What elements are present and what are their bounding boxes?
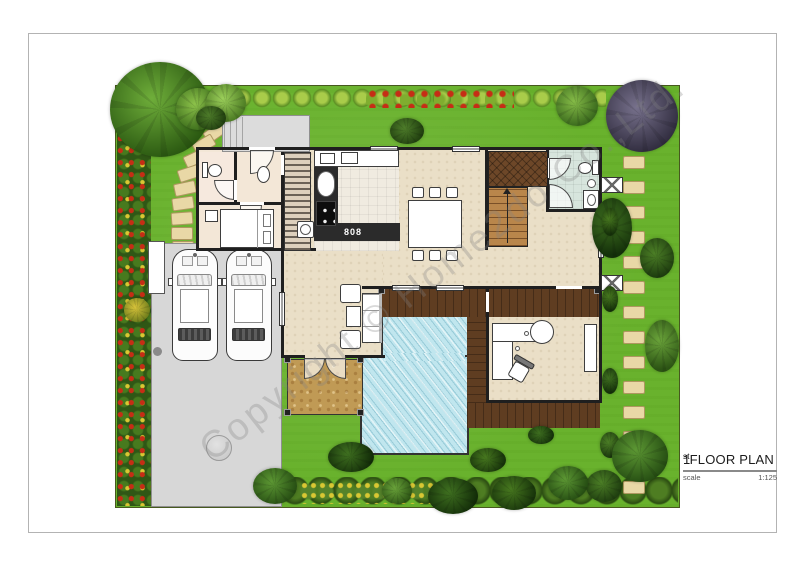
stepping-stone-icon [623, 181, 645, 194]
stepping-stone-icon [623, 406, 645, 419]
car-mirror [222, 278, 227, 286]
armchair-icon [340, 284, 361, 303]
pool-deck-right [467, 317, 488, 403]
car-mirror [271, 278, 276, 286]
tree-icon [556, 86, 598, 126]
car-headlight [197, 256, 208, 266]
scale-value: 1:125 [758, 473, 777, 482]
counter-hob [341, 152, 358, 164]
scale-row: scale 1:125 [683, 473, 777, 482]
palm-icon [470, 448, 506, 472]
washing-machine-icon [297, 221, 314, 238]
bed-pillow [263, 214, 271, 227]
plan-title-text: FLOOR PLAN [690, 452, 774, 467]
car-headlight [251, 256, 262, 266]
bed-blanket-line [257, 210, 258, 248]
nightstand [205, 210, 218, 222]
stepping-stone-icon [171, 227, 193, 240]
shrub-icon [602, 286, 618, 312]
palm-icon [328, 442, 374, 472]
bush-icon [253, 468, 297, 504]
courtyard-door-opening [556, 286, 582, 289]
bar-stool [515, 346, 520, 351]
toilet-bowl [208, 164, 222, 177]
wc-door-opening [234, 180, 237, 200]
car-roof [180, 289, 209, 323]
shrub-icon [390, 118, 424, 144]
window-bench [584, 324, 597, 372]
shrub-icon [196, 106, 226, 130]
palm-icon [492, 476, 536, 510]
stepping-stone-icon [623, 381, 645, 394]
title-block: 1st FLOOR PLAN scale 1:125 [683, 452, 777, 482]
bar-counter-round-end [530, 320, 554, 344]
bush-icon [612, 430, 668, 482]
shrub-icon [528, 426, 554, 444]
bathroom-wall-bottom [546, 209, 602, 212]
stepping-stone-icon [623, 281, 645, 294]
title-divider-line [683, 470, 777, 472]
dining-chair-icon [412, 187, 424, 198]
scale-label: scale [683, 473, 701, 482]
pool-room-wall-bottom [486, 400, 602, 403]
gate-icon [148, 241, 165, 294]
floor-plan-sheet: 808 [0, 0, 800, 566]
car-roof [234, 289, 263, 323]
bush-icon [548, 466, 588, 500]
car-headlight [236, 256, 247, 266]
stepping-stone-icon [623, 331, 645, 344]
terrace-post [357, 409, 364, 416]
car-windshield [231, 274, 266, 286]
top-hedge-red-flowers [366, 88, 514, 108]
shrub-icon [640, 238, 674, 278]
car-mirror [168, 278, 173, 286]
sink-icon [257, 166, 270, 183]
pool-deck-bottom [467, 403, 600, 428]
car-headlight [182, 256, 193, 266]
car-icon [226, 249, 272, 361]
pool-icon [360, 355, 469, 455]
pool-water [384, 353, 465, 361]
shrub-icon [602, 208, 618, 236]
stepping-stone-icon [623, 481, 645, 494]
tree-icon [645, 320, 679, 372]
ac-unit-icon [601, 177, 623, 193]
stepping-stone-icon [623, 356, 645, 369]
car-rear-window [178, 328, 211, 341]
palm-icon [428, 478, 478, 514]
vanity-basin [587, 194, 596, 206]
bush-icon [586, 470, 622, 502]
bar-stool [524, 331, 529, 336]
bed-icon [220, 209, 274, 248]
sink-icon [317, 171, 335, 197]
stove-icon [316, 201, 336, 226]
car-rear-window [232, 328, 265, 341]
bed-pillow [263, 231, 271, 244]
dining-chair-icon [446, 187, 458, 198]
bath-vanity [583, 190, 599, 209]
dining-chair-icon [429, 187, 441, 198]
car-windshield [177, 274, 212, 286]
bush-icon [124, 298, 150, 322]
stepping-stone-icon [623, 306, 645, 319]
car-icon [172, 249, 218, 361]
stepping-stone-icon [171, 211, 194, 226]
stove-knobs-label: 808 [344, 227, 362, 237]
shrub-icon [602, 368, 618, 394]
washer-drum [300, 224, 311, 235]
drain-icon [153, 347, 162, 356]
pool-room-door-opening [486, 292, 489, 312]
window-icon [452, 146, 480, 152]
stepping-stone-icon [623, 156, 645, 169]
exterior-wall-left [196, 150, 199, 251]
bush-icon [382, 478, 412, 504]
window-icon [279, 292, 285, 326]
counter-sink [320, 153, 335, 164]
plan-title: 1st FLOOR PLAN [683, 452, 777, 467]
